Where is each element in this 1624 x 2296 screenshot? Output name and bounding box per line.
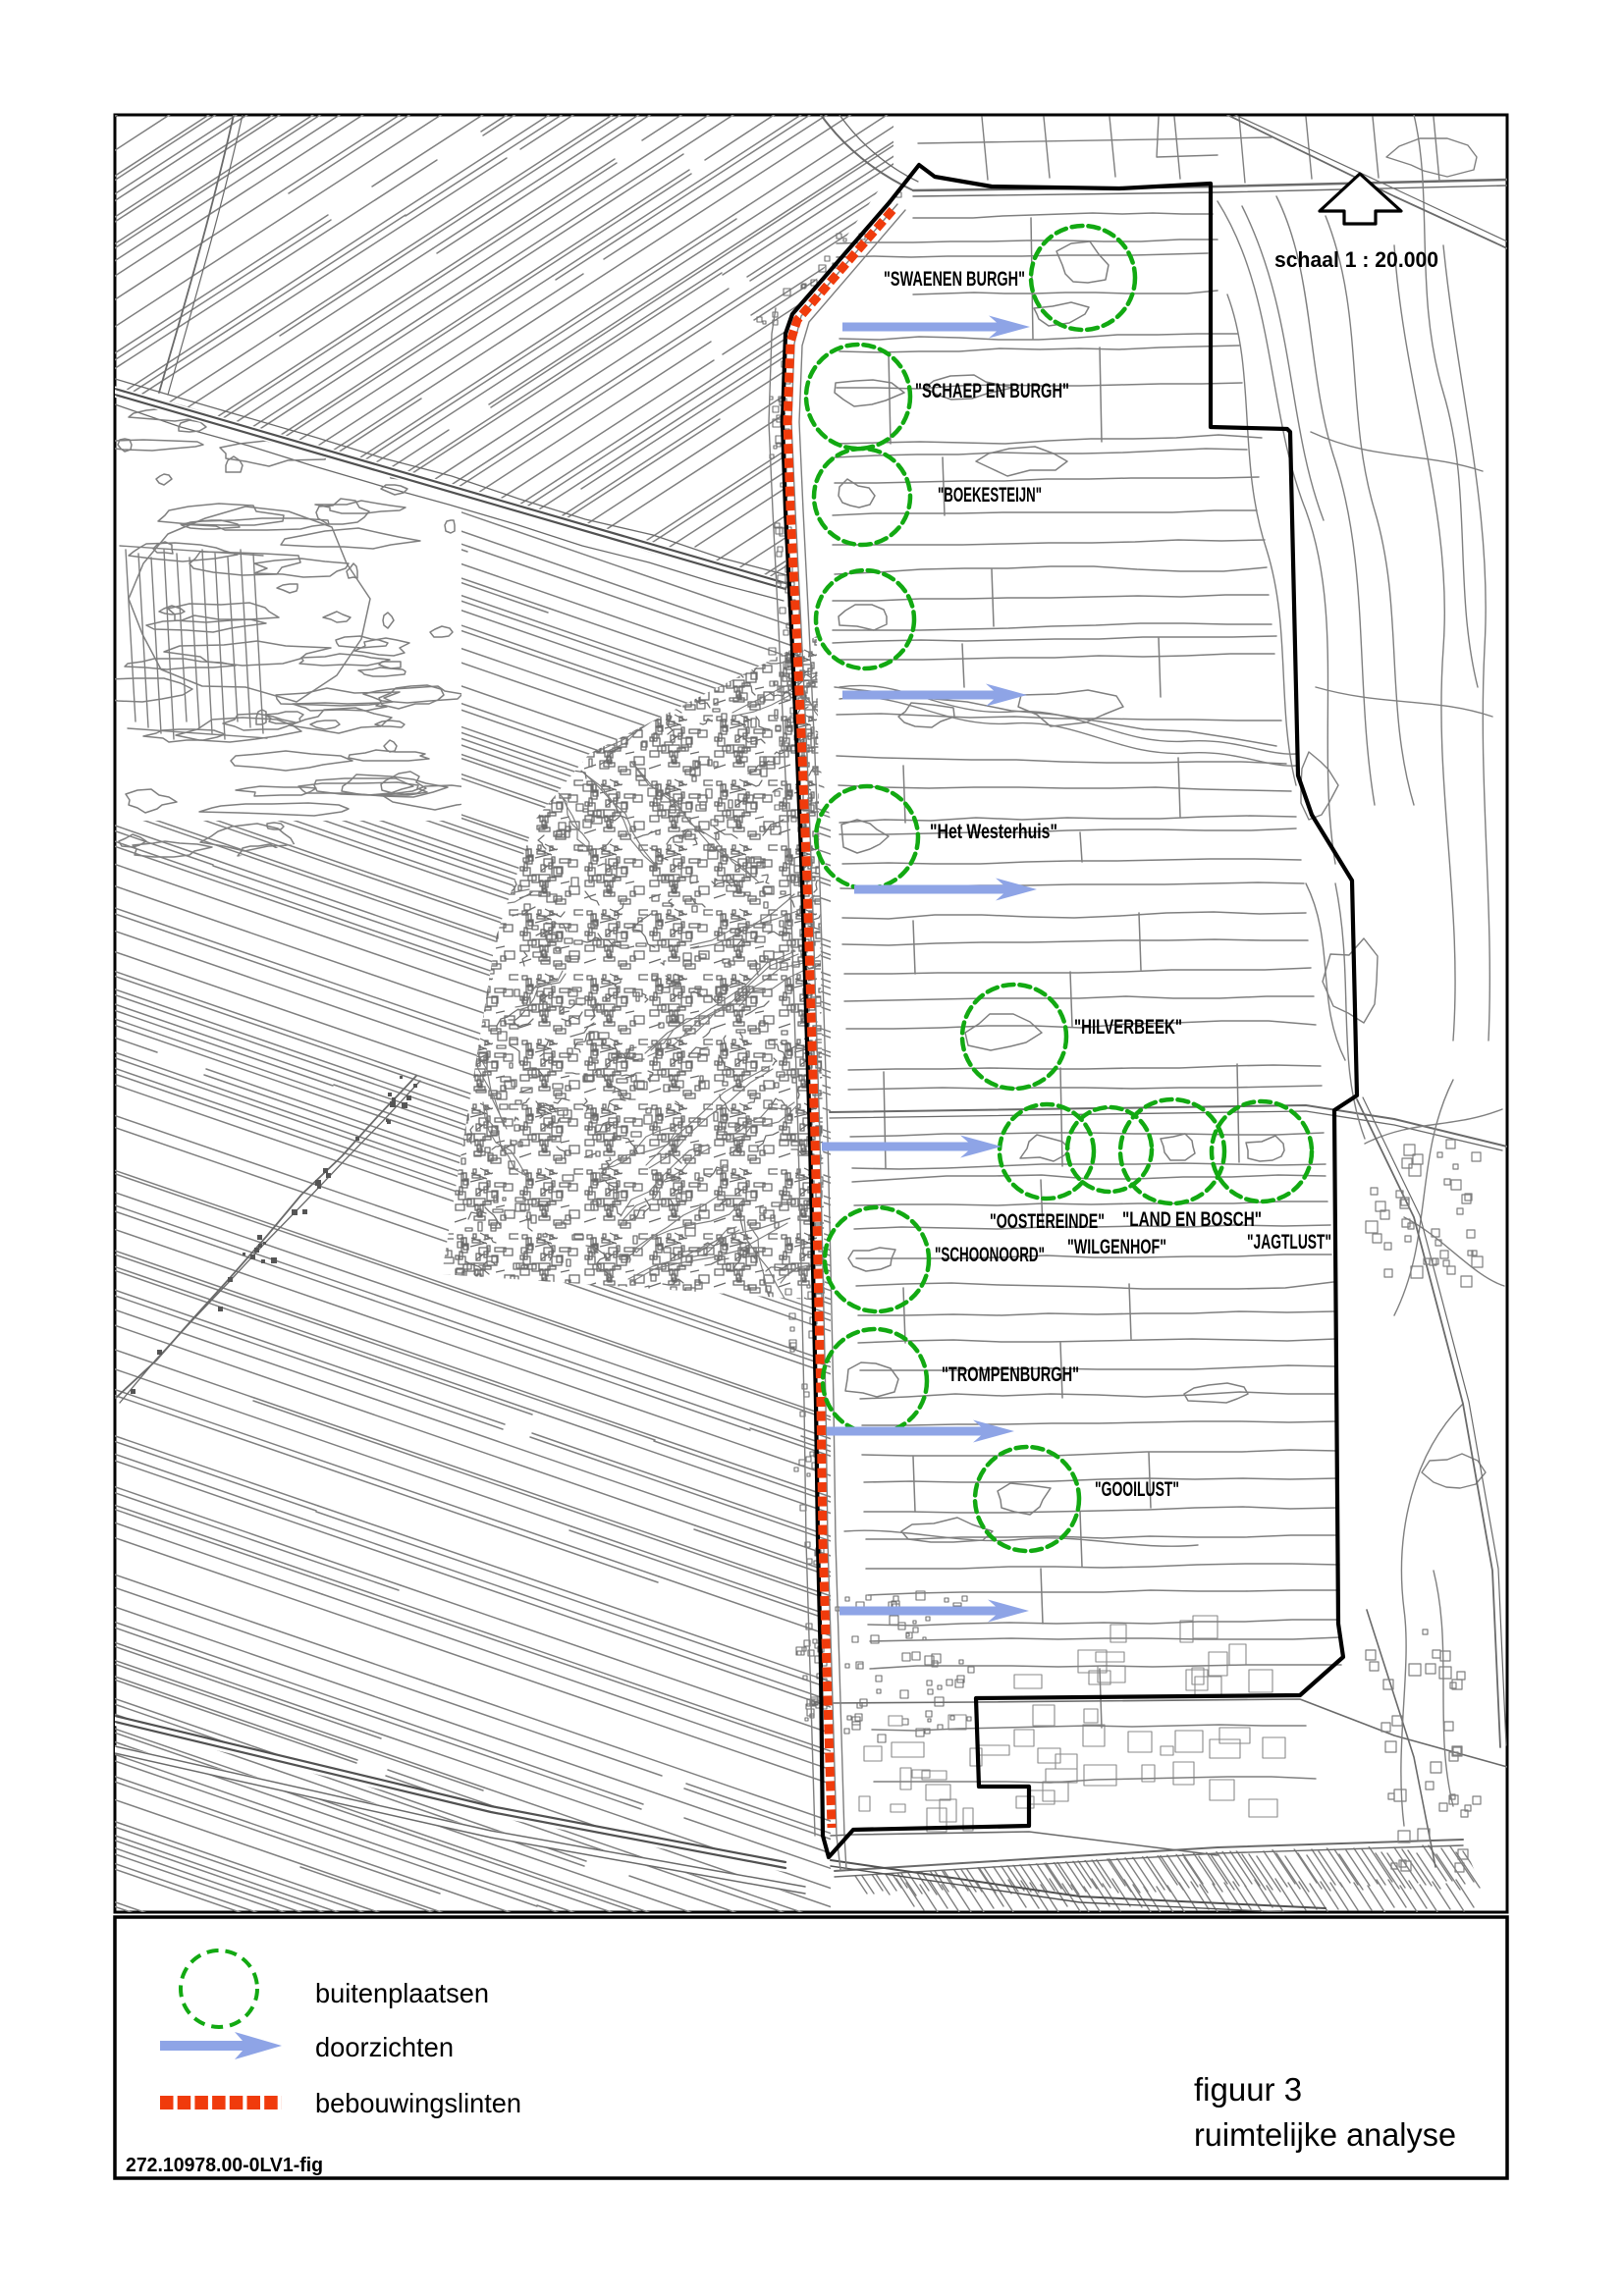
svg-text:"BOEKESTEIJN": "BOEKESTEIJN" (938, 484, 1042, 507)
svg-text:"OOSTEREINDE": "OOSTEREINDE" (990, 1210, 1105, 1233)
svg-text:"SCHAEP EN BURGH": "SCHAEP EN BURGH" (915, 380, 1069, 402)
svg-text:"WILGENHOF": "WILGENHOF" (1067, 1236, 1166, 1258)
svg-text:"SCHOONOORD": "SCHOONOORD" (935, 1244, 1045, 1266)
svg-text:bebouwingslinten: bebouwingslinten (315, 2088, 521, 2118)
svg-text:"Het Westerhuis": "Het Westerhuis" (930, 821, 1057, 843)
svg-text:ruimtelijke analyse: ruimtelijke analyse (1194, 2116, 1456, 2153)
svg-text:"SWAENEN BURGH": "SWAENEN BURGH" (884, 268, 1025, 291)
svg-text:doorzichten: doorzichten (315, 2032, 454, 2062)
svg-text:figuur 3: figuur 3 (1194, 2071, 1302, 2108)
svg-text:272.10978.00-0LV1-fig: 272.10978.00-0LV1-fig (126, 2155, 323, 2176)
svg-text:"GOOILUST": "GOOILUST" (1095, 1478, 1179, 1501)
svg-text:"HILVERBEEK": "HILVERBEEK" (1074, 1016, 1182, 1039)
svg-text:schaal 1 : 20.000: schaal 1 : 20.000 (1274, 247, 1438, 272)
svg-text:"LAND EN BOSCH": "LAND EN BOSCH" (1122, 1208, 1262, 1231)
svg-text:"JAGTLUST": "JAGTLUST" (1247, 1231, 1331, 1254)
svg-text:buitenplaatsen: buitenplaatsen (315, 1978, 489, 2008)
svg-text:"TROMPENBURGH": "TROMPENBURGH" (942, 1363, 1079, 1386)
